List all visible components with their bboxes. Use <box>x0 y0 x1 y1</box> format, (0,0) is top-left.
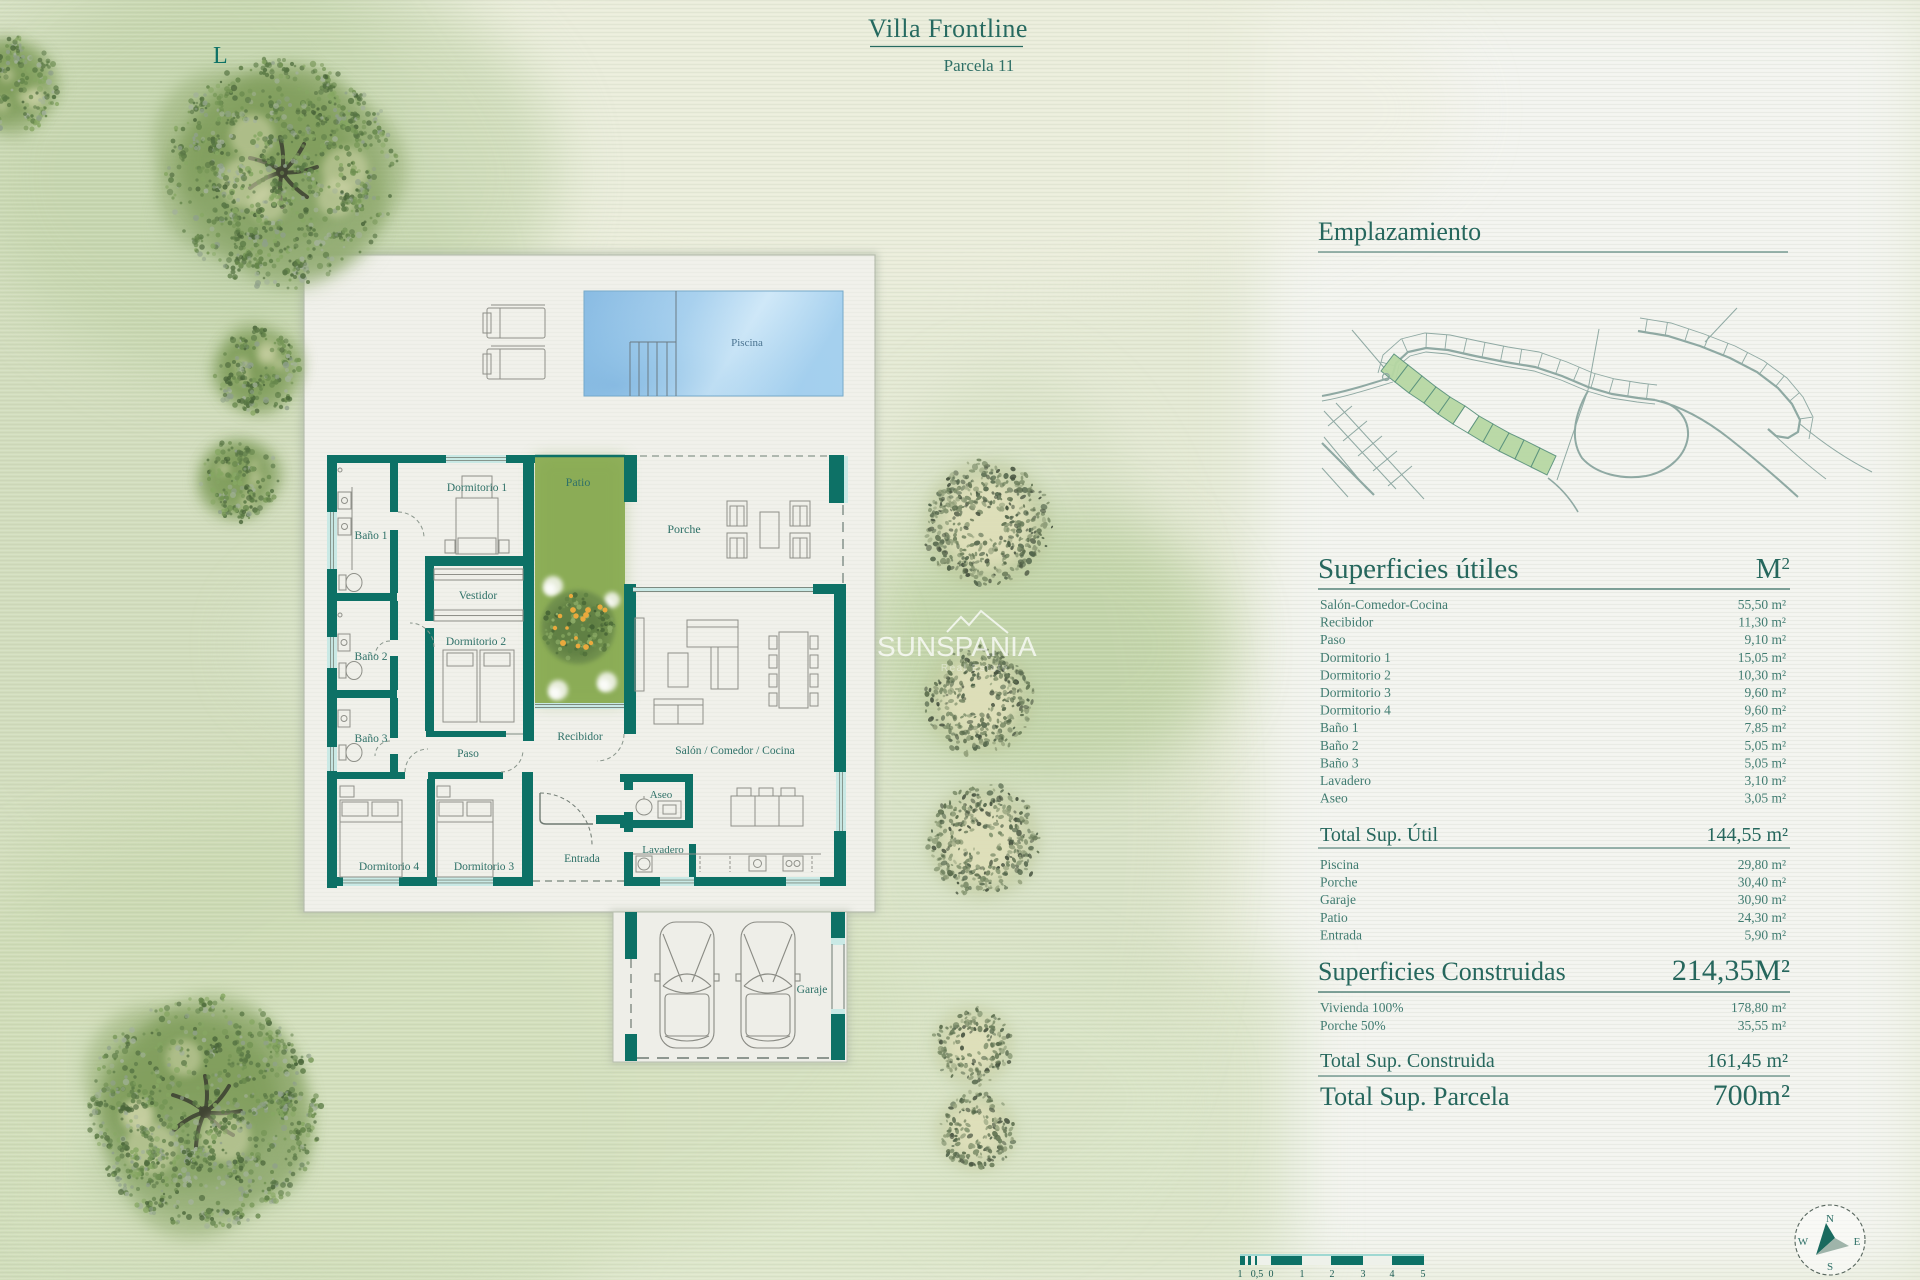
svg-text:Dormitorio 1: Dormitorio 1 <box>1320 650 1391 665</box>
svg-text:L: L <box>213 43 228 69</box>
svg-text:7,85 m²: 7,85 m² <box>1744 720 1786 735</box>
svg-text:Patio: Patio <box>1320 910 1348 925</box>
svg-text:3,10 m²: 3,10 m² <box>1744 773 1786 788</box>
svg-text:0: 0 <box>1269 1269 1274 1280</box>
svg-text:Dormitorio 3: Dormitorio 3 <box>454 861 515 873</box>
svg-text:Superficies útiles: Superficies útiles <box>1318 553 1519 585</box>
svg-text:161,45 m²: 161,45 m² <box>1706 1050 1788 1072</box>
svg-text:Entrada: Entrada <box>1320 927 1362 942</box>
svg-text:1: 1 <box>1300 1269 1305 1280</box>
svg-text:Total Sup. Parcela: Total Sup. Parcela <box>1320 1082 1510 1111</box>
svg-text:Aseo: Aseo <box>1320 791 1348 806</box>
svg-text:144,55 m²: 144,55 m² <box>1706 824 1788 846</box>
svg-text:Baño 2: Baño 2 <box>355 651 388 663</box>
svg-text:4: 4 <box>1390 1269 1395 1280</box>
svg-text:9,60 m²: 9,60 m² <box>1744 685 1786 700</box>
svg-text:SUNSPANIA: SUNSPANIA <box>877 631 1039 662</box>
svg-text:Paso: Paso <box>457 748 479 760</box>
svg-text:Superficies Construidas: Superficies Construidas <box>1318 957 1566 986</box>
svg-text:Patio: Patio <box>566 475 591 489</box>
svg-text:Porche: Porche <box>667 522 700 536</box>
svg-text:Baño 2: Baño 2 <box>1320 738 1359 753</box>
svg-text:Vestidor: Vestidor <box>459 590 498 602</box>
svg-text:Baño 3: Baño 3 <box>355 733 388 745</box>
svg-text:Garaje: Garaje <box>797 984 828 996</box>
svg-text:Salón-Comedor-Cocina: Salón-Comedor-Cocina <box>1320 597 1448 612</box>
svg-text:Baño 3: Baño 3 <box>1320 755 1359 770</box>
svg-text:Lavadero: Lavadero <box>1320 773 1371 788</box>
svg-text:Paso: Paso <box>1320 632 1346 647</box>
svg-text:9,10 m²: 9,10 m² <box>1744 632 1786 647</box>
svg-text:Lavadero: Lavadero <box>642 844 684 856</box>
svg-text:1: 1 <box>1238 1269 1243 1280</box>
svg-text:N: N <box>1826 1213 1834 1225</box>
svg-text:Porche: Porche <box>1320 875 1358 890</box>
svg-text:Dormitorio 1: Dormitorio 1 <box>447 482 508 494</box>
svg-text:Baño 1: Baño 1 <box>1320 720 1359 735</box>
svg-text:10,30 m²: 10,30 m² <box>1738 667 1786 682</box>
svg-text:15,05 m²: 15,05 m² <box>1738 650 1786 665</box>
svg-text:Villa Frontline: Villa Frontline <box>868 14 1028 43</box>
svg-text:Dormitorio 4: Dormitorio 4 <box>359 861 420 873</box>
svg-text:Total Sup. Útil: Total Sup. Útil <box>1320 822 1438 846</box>
svg-text:Baño 1: Baño 1 <box>355 530 388 542</box>
svg-text:E: E <box>1854 1236 1861 1248</box>
svg-text:Real Estate: Real Estate <box>941 663 1009 674</box>
svg-text:Emplazamiento: Emplazamiento <box>1318 217 1481 246</box>
svg-text:Recibidor: Recibidor <box>1320 615 1374 630</box>
svg-text:W: W <box>1798 1236 1809 1248</box>
svg-text:Total Sup. Construida: Total Sup. Construida <box>1320 1050 1495 1072</box>
svg-text:Piscina: Piscina <box>731 337 763 349</box>
svg-text:35,55 m²: 35,55 m² <box>1738 1018 1786 1033</box>
svg-text:Dormitorio 2: Dormitorio 2 <box>446 636 507 648</box>
svg-text:5: 5 <box>1421 1269 1426 1280</box>
svg-text:700m²: 700m² <box>1713 1079 1790 1112</box>
svg-text:30,90 m²: 30,90 m² <box>1738 892 1786 907</box>
svg-text:9,60 m²: 9,60 m² <box>1744 703 1786 718</box>
svg-text:Entrada: Entrada <box>564 853 600 865</box>
svg-text:178,80 m²: 178,80 m² <box>1731 1000 1786 1015</box>
svg-text:0,5: 0,5 <box>1251 1269 1264 1280</box>
svg-text:Porche 50%: Porche 50% <box>1320 1018 1386 1033</box>
svg-text:5,90 m²: 5,90 m² <box>1744 927 1786 942</box>
svg-text:Dormitorio 2: Dormitorio 2 <box>1320 667 1391 682</box>
svg-text:Piscina: Piscina <box>1320 857 1359 872</box>
svg-text:Salón / Comedor / Cocina: Salón / Comedor / Cocina <box>675 745 794 757</box>
svg-text:5,05 m²: 5,05 m² <box>1744 738 1786 753</box>
svg-text:2: 2 <box>1330 1269 1335 1280</box>
svg-text:30,40 m²: 30,40 m² <box>1738 875 1786 890</box>
svg-text:Aseo: Aseo <box>650 789 673 801</box>
svg-text:5,05 m²: 5,05 m² <box>1744 755 1786 770</box>
svg-text:11,30 m²: 11,30 m² <box>1738 615 1786 630</box>
svg-text:S: S <box>1827 1261 1833 1273</box>
svg-text:Parcela 11: Parcela 11 <box>944 56 1015 75</box>
svg-text:29,80 m²: 29,80 m² <box>1738 857 1786 872</box>
svg-text:Dormitorio 4: Dormitorio 4 <box>1320 703 1391 718</box>
svg-text:214,35M²: 214,35M² <box>1672 954 1790 987</box>
svg-text:3,05 m²: 3,05 m² <box>1744 791 1786 806</box>
svg-text:Dormitorio 3: Dormitorio 3 <box>1320 685 1391 700</box>
svg-text:Recibidor: Recibidor <box>557 731 603 743</box>
svg-text:Vivienda 100%: Vivienda 100% <box>1320 1000 1404 1015</box>
svg-text:Garaje: Garaje <box>1320 892 1356 907</box>
svg-text:24,30 m²: 24,30 m² <box>1738 910 1786 925</box>
svg-text:3: 3 <box>1361 1269 1366 1280</box>
svg-text:55,50 m²: 55,50 m² <box>1738 597 1786 612</box>
